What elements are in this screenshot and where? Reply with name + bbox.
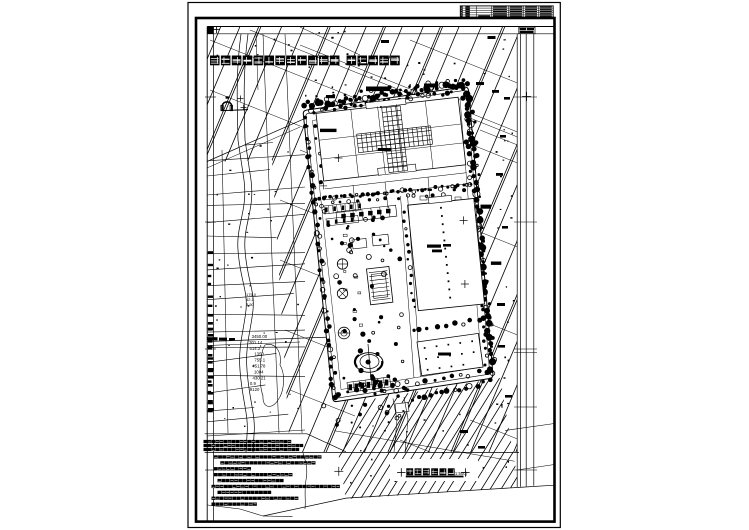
svg-text:755.1: 755.1	[254, 358, 265, 363]
svg-text:614.2: 614.2	[250, 346, 261, 351]
svg-text:451.78: 451.78	[252, 364, 266, 369]
svg-text:1350: 1350	[254, 352, 264, 357]
svg-text:3450.00: 3450.00	[252, 334, 268, 339]
svg-text:3.50: 3.50	[246, 302, 255, 307]
svg-text:9120: 9120	[250, 387, 260, 392]
svg-text:430.21: 430.21	[253, 375, 267, 380]
svg-text:0.9: 0.9	[250, 381, 257, 386]
svg-text:301.14: 301.14	[249, 340, 263, 345]
svg-text:1004: 1004	[254, 369, 264, 374]
